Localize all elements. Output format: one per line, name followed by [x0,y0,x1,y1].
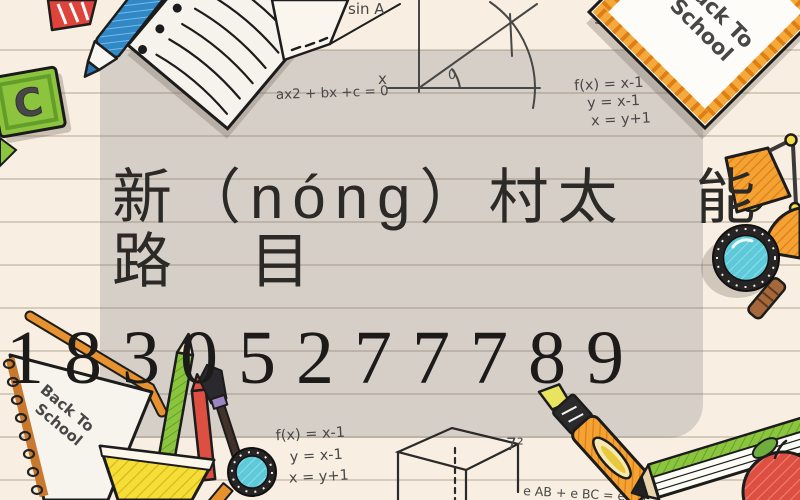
red-notebook-icon [48,0,96,30]
title-line2: 路 目 [112,230,732,294]
fx-eq2: y = x-1 [587,93,641,112]
axis-diagram [388,0,540,108]
green-corner-wedge [0,138,16,166]
fx-eq3-b: x = y+1 [289,468,350,487]
title: 新（nóng）村太 能 路 目 [112,166,732,294]
angle-label: 0 [448,68,456,83]
seven-squared: 7² [506,435,524,455]
letter-tile-icon: C [0,66,72,144]
fx-eq2-b: y = x-1 [289,447,343,466]
fx-eq3: x = y+1 [591,110,652,129]
fx-eq1-b: f(x) = x-1 [275,425,345,445]
cube-sketch [398,428,518,500]
sin-label: sin A [348,0,385,18]
poster: C [0,0,800,500]
title-line1: 新（nóng）村太 能 [112,166,732,230]
fx-eq1: f(x) = x-1 [574,75,644,95]
function-equations-bottom: f(x) = x-1 y = x-1 x = y+1 [275,425,349,488]
small-magnifier-icon [207,448,276,500]
phone-number: 18305277789 [6,320,644,396]
quadratic-eq: ax2 + bx +c = 0 [276,83,389,103]
function-equations-top: f(x) = x-1 y = x-1 x = y+1 [574,74,652,130]
